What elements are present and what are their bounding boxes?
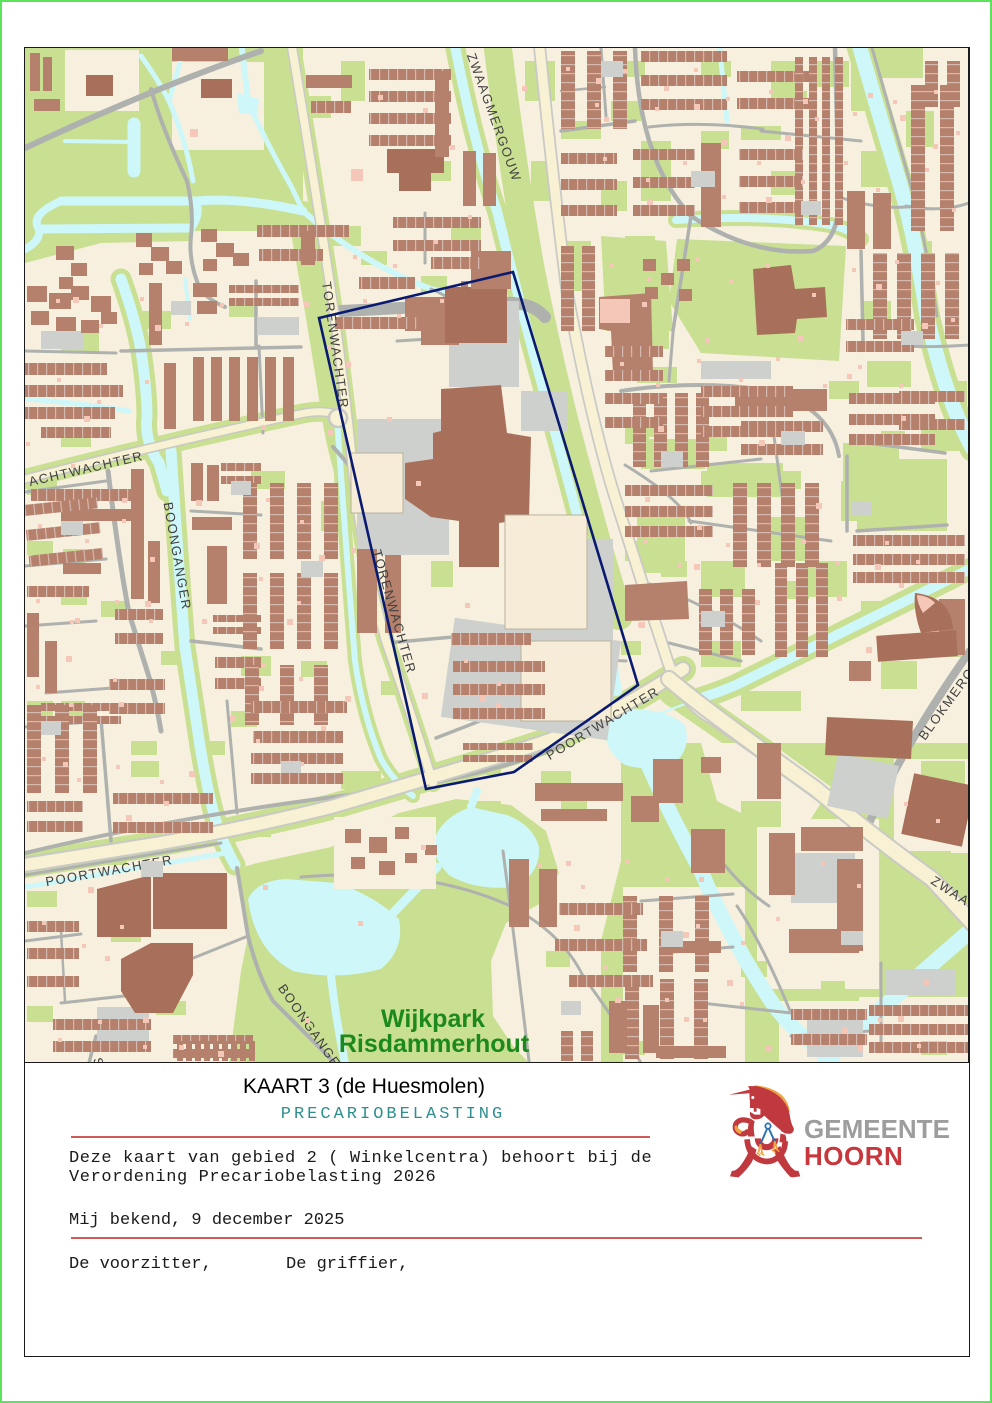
svg-text:HOORN: HOORN (804, 1141, 903, 1171)
svg-text:Wijkpark: Wijkpark (381, 1005, 485, 1033)
svg-text:Risdammerhout: Risdammerhout (339, 1030, 530, 1058)
svg-text:GEMEENTE: GEMEENTE (804, 1114, 950, 1144)
